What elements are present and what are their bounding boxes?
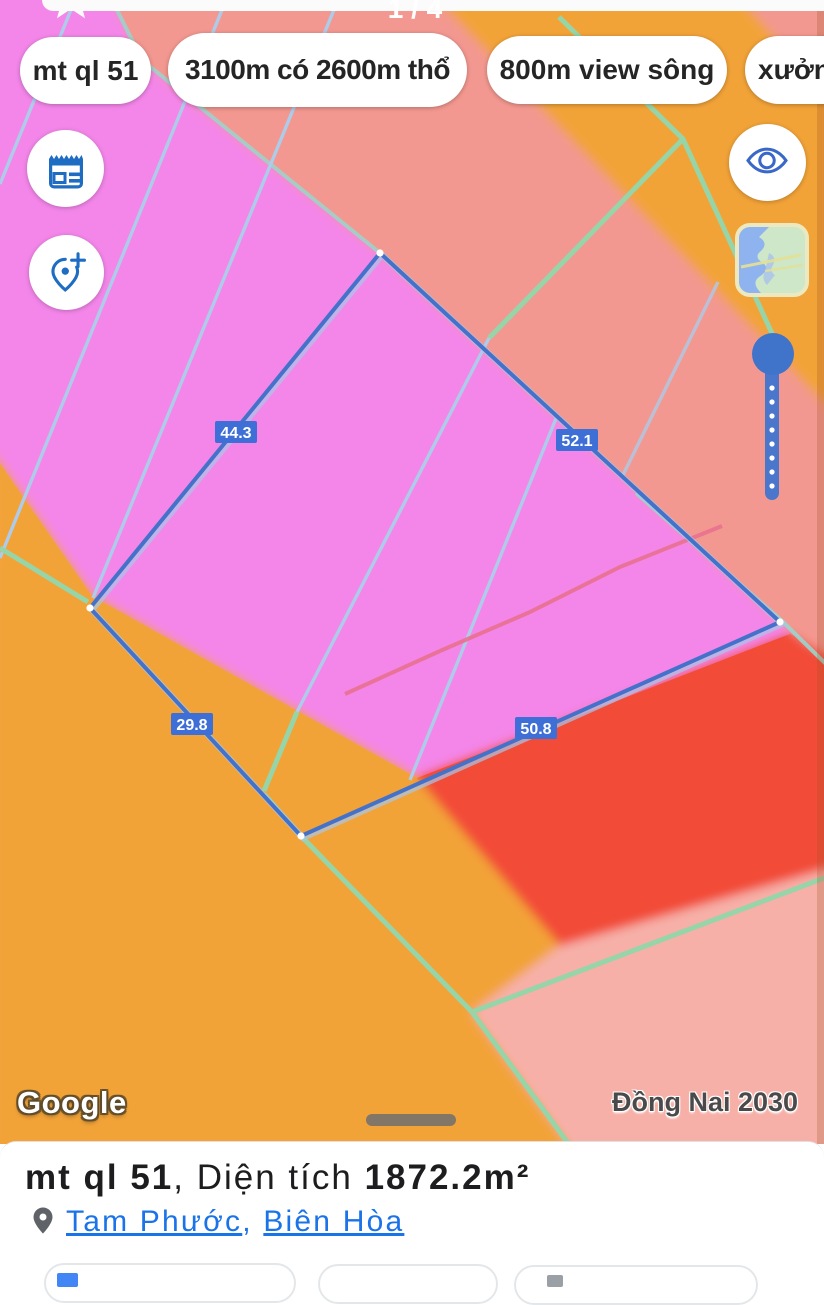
svg-text:29.8: 29.8 [176, 717, 207, 734]
svg-text:44.3: 44.3 [220, 425, 251, 442]
svg-text:50.8: 50.8 [520, 721, 551, 738]
svg-text:52.1: 52.1 [561, 433, 592, 450]
